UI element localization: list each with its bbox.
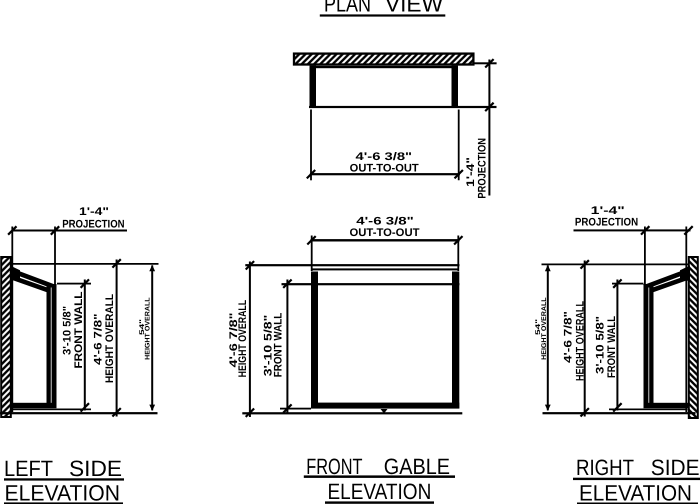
svg-text:4'-6 3/8": 4'-6 3/8" [356,151,413,163]
svg-text:PROJECTION: PROJECTION [476,138,488,199]
svg-text:ELEVATION: ELEVATION [328,479,432,504]
svg-text:4'-6 7/8": 4'-6 7/8" [93,314,105,366]
svg-text:PLAN: PLAN [324,0,371,17]
svg-text:HEIGHT OVERALL: HEIGHT OVERALL [541,297,548,360]
svg-text:OUT-TO-OUT: OUT-TO-OUT [350,163,419,175]
svg-text:FRONT WALL: FRONT WALL [606,316,618,378]
svg-text:1'-4": 1'-4" [591,205,625,217]
svg-text:HEIGHT OVERALL: HEIGHT OVERALL [575,301,587,381]
svg-text:1'-4": 1'-4" [465,157,477,187]
svg-text:VIEW: VIEW [385,0,443,17]
svg-text:3'-10 5/8": 3'-10 5/8" [62,306,74,355]
svg-text:SIDE: SIDE [69,456,122,481]
svg-text:HEIGHT OVERALL: HEIGHT OVERALL [144,297,151,360]
svg-text:HEIGHT OVERALL: HEIGHT OVERALL [104,294,116,383]
svg-text:FRONT WALL: FRONT WALL [273,313,285,378]
svg-text:3'-10 5/8": 3'-10 5/8" [595,316,607,374]
svg-text:PROJECTION: PROJECTION [575,217,638,229]
svg-text:OUT-TO-OUT: OUT-TO-OUT [350,227,420,239]
svg-text:FRONT: FRONT [306,454,363,479]
svg-text:GABLE: GABLE [384,454,450,479]
svg-text:LEFT: LEFT [4,456,53,481]
svg-text:HEIGHT OVERALL: HEIGHT OVERALL [237,300,249,378]
svg-text:FRONT WALL: FRONT WALL [73,291,85,368]
svg-text:4'-6 7/8": 4'-6 7/8" [563,311,575,363]
svg-text:PROJECTION: PROJECTION [62,218,124,230]
svg-text:RIGHT: RIGHT [576,455,634,480]
svg-text:1'-4": 1'-4" [79,206,109,218]
svg-text:ELEVATION: ELEVATION [579,480,692,504]
svg-text:SIDE: SIDE [651,455,700,480]
svg-text:ELEVATION: ELEVATION [5,480,121,504]
svg-text:4'-6 3/8": 4'-6 3/8" [356,216,414,228]
